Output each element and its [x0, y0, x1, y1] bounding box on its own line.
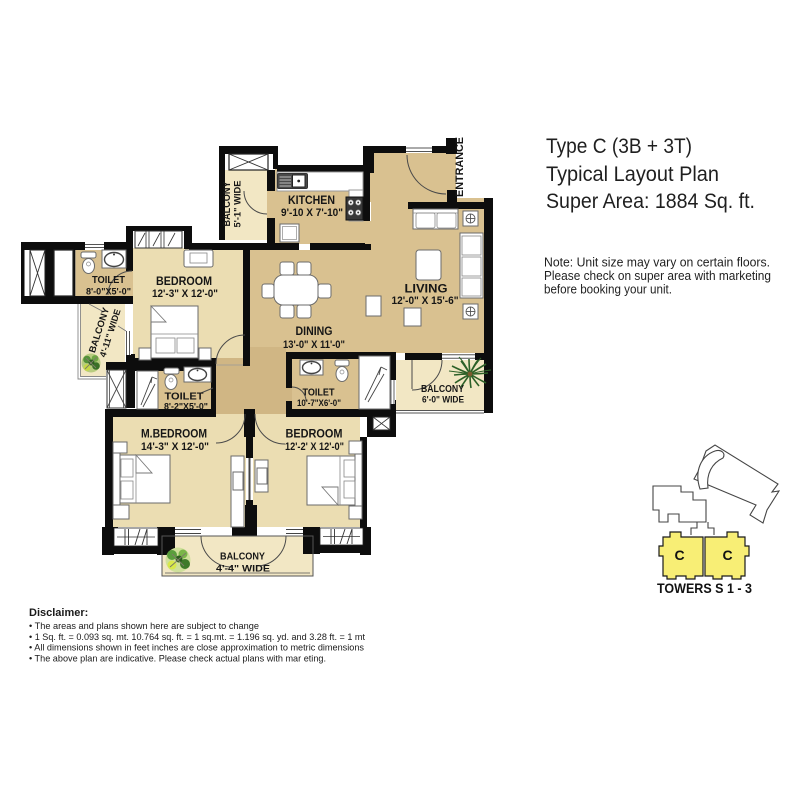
svg-text:TOILET: TOILET [92, 275, 125, 286]
svg-text:BALCONY: BALCONY [220, 552, 265, 563]
svg-text:DINING: DINING [296, 324, 333, 338]
svg-text:12'-3" X 12'-0": 12'-3" X 12'-0" [152, 288, 218, 300]
svg-text:13'-0" X 11'-0": 13'-0" X 11'-0" [283, 339, 345, 351]
svg-text:TOILET: TOILET [303, 388, 335, 399]
svg-text:Super Area: 1884 Sq. ft.: Super Area: 1884 Sq. ft. [546, 189, 755, 213]
svg-text:• The above plan are indicativ: • The above plan are indicative. Please … [29, 654, 326, 665]
svg-text:• All dimensions shown in feet: • All dimensions shown in feet inches ar… [29, 643, 364, 654]
svg-text:9'-10 X 7'-10": 9'-10 X 7'-10" [281, 207, 343, 219]
svg-text:TOWERS S 1 - 3: TOWERS S 1 - 3 [657, 580, 752, 596]
svg-text:before booking your unit.: before booking your unit. [544, 282, 672, 297]
svg-text:Typical Layout Plan: Typical Layout Plan [546, 162, 719, 186]
svg-text:8'-2"X5'-0": 8'-2"X5'-0" [164, 402, 208, 413]
svg-text:• The areas and plans shown he: • The areas and plans shown here are sub… [29, 621, 259, 632]
svg-text:5'-1" WIDE: 5'-1" WIDE [233, 181, 244, 228]
svg-text:ENTRANCE: ENTRANCE [454, 137, 466, 197]
svg-text:C: C [722, 547, 732, 563]
svg-text:M.BEDROOM: M.BEDROOM [141, 427, 207, 441]
svg-text:12'-0" X 15'-6": 12'-0" X 15'-6" [392, 295, 459, 307]
svg-text:LIVING: LIVING [405, 282, 448, 296]
svg-text:• 1 Sq. ft. = 0.093 sq. mt. 10: • 1 Sq. ft. = 0.093 sq. mt. 10.764 sq. f… [29, 632, 365, 643]
svg-text:4'-4" WIDE: 4'-4" WIDE [216, 564, 270, 575]
svg-text:12'-2' X 12'-0": 12'-2' X 12'-0" [285, 441, 344, 453]
svg-text:BALCONY: BALCONY [421, 384, 464, 395]
svg-text:Type C (3B + 3T): Type C (3B + 3T) [546, 134, 692, 158]
svg-text:KITCHEN: KITCHEN [288, 193, 335, 207]
svg-text:Disclaimer:: Disclaimer: [29, 607, 88, 619]
svg-text:BEDROOM: BEDROOM [286, 427, 343, 441]
svg-text:C: C [674, 547, 684, 563]
svg-text:10'-7"X6'-0": 10'-7"X6'-0" [297, 398, 341, 409]
svg-text:8'-0"X5'-0": 8'-0"X5'-0" [86, 287, 131, 297]
svg-text:6'-0" WIDE: 6'-0" WIDE [422, 395, 464, 406]
svg-text:14'-3" X 12'-0": 14'-3" X 12'-0" [141, 441, 209, 453]
svg-text:BALCONY: BALCONY [222, 181, 233, 226]
svg-text:BEDROOM: BEDROOM [156, 274, 212, 288]
